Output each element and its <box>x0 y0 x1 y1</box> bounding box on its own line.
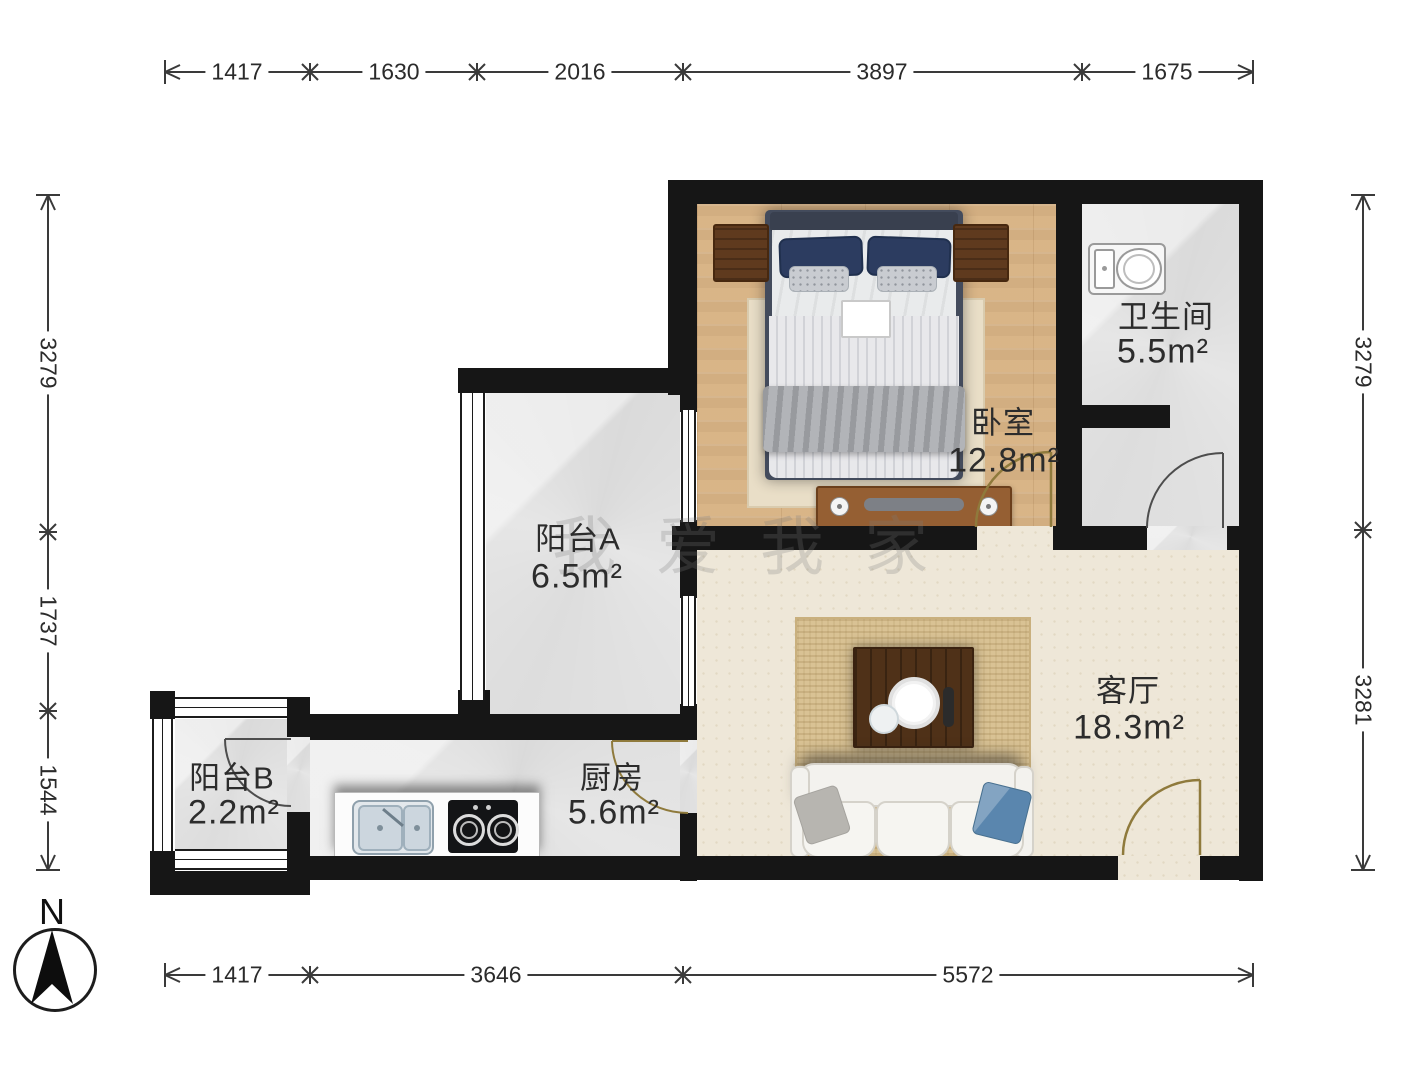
dim-left-2: 1737 <box>35 589 62 652</box>
north-label: N <box>39 891 65 933</box>
dim-bottom-1: 1417 <box>205 962 268 989</box>
dim-top-1: 1417 <box>205 59 268 86</box>
living-area: 18.3m² <box>1073 709 1185 748</box>
dim-left-1: 3279 <box>35 331 62 394</box>
dim-bottom-2: 3646 <box>464 962 527 989</box>
balcony-a-label: 阳台A <box>535 514 621 559</box>
balcony-a-area: 6.5m² <box>531 558 623 597</box>
north-arrow-needle <box>31 930 73 1004</box>
kitchen-label: 厨房 <box>580 753 644 798</box>
bathroom-area: 5.5m² <box>1117 333 1209 372</box>
balcony-b-area: 2.2m² <box>188 794 280 833</box>
bedroom-area: 12.8m² <box>948 442 1060 481</box>
floor-plan: 1417 1630 2016 3897 1675 1417 3646 5572 … <box>0 0 1420 1065</box>
dim-top-2: 1630 <box>362 59 425 86</box>
bathroom-label: 卫生间 <box>1118 292 1214 337</box>
dim-left-3: 1544 <box>35 758 62 821</box>
kitchen-area: 5.6m² <box>568 794 660 833</box>
dim-top-5: 1675 <box>1135 59 1198 86</box>
balcony-b-label: 阳台B <box>189 753 275 798</box>
dim-top-3: 2016 <box>548 59 611 86</box>
dim-right-1: 3279 <box>1350 330 1377 393</box>
bedroom-label: 卧室 <box>971 398 1035 443</box>
bathroom-door-arc <box>1147 453 1223 528</box>
living-label: 客厅 <box>1096 666 1160 711</box>
dim-right-2: 3281 <box>1350 668 1377 731</box>
dim-bottom-3: 5572 <box>936 962 999 989</box>
entry-door-arc <box>1123 780 1200 855</box>
dim-top-4: 3897 <box>850 59 913 86</box>
